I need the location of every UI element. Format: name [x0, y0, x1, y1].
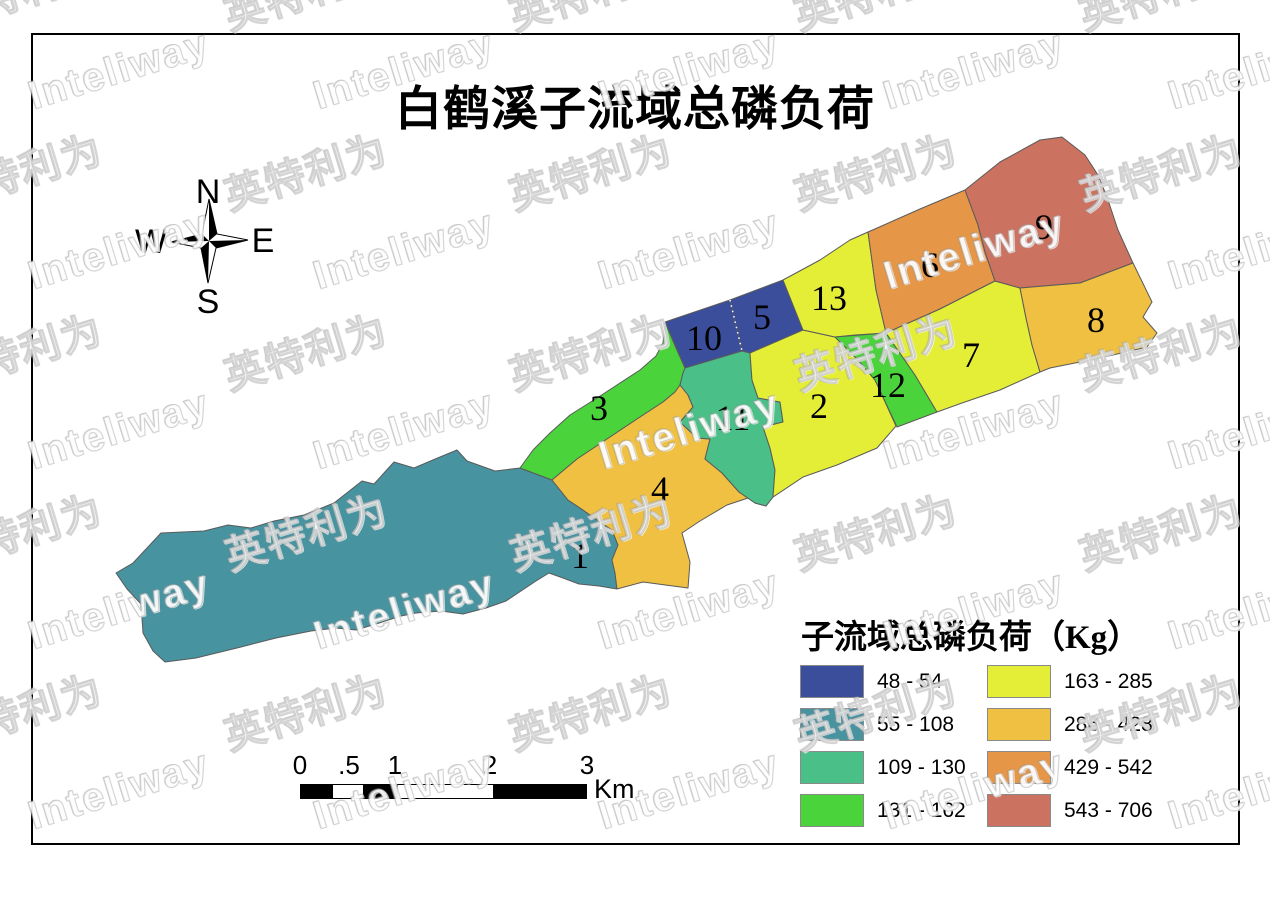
- legend-range-label: 163 - 285: [1064, 665, 1153, 698]
- scale-rule: [300, 784, 587, 799]
- legend-swatch: [800, 751, 864, 784]
- subbasin-6-label: 6: [921, 245, 939, 285]
- subbasin-7-label: 7: [962, 335, 980, 375]
- legend-range-label: 131 - 162: [877, 794, 966, 827]
- scale-tick: .5: [338, 750, 360, 781]
- subbasin-3-label: 3: [590, 388, 608, 428]
- scale-tick: 3: [580, 750, 594, 781]
- scale-segment: [493, 785, 586, 798]
- legend-swatch: [987, 751, 1051, 784]
- subbasin-1-label: 1: [571, 536, 589, 576]
- legend-item: 163 - 285: [987, 665, 1153, 698]
- scale-tick: 0: [293, 750, 307, 781]
- legend-range-label: 429 - 542: [1064, 751, 1153, 784]
- compass-north-label: N: [196, 173, 221, 211]
- legend-title: 子流域总磷负荷（Kg）: [801, 610, 1140, 658]
- legend-swatch: [800, 708, 864, 741]
- legend-swatch: [800, 794, 864, 827]
- legend-item: 131 - 162: [800, 794, 966, 827]
- scale-segment: [363, 785, 398, 798]
- legend-range-label: 109 - 130: [877, 751, 966, 784]
- scale-tick: 2: [483, 750, 497, 781]
- legend-range-label: 286 - 428: [1064, 708, 1153, 741]
- legend-item: 48 - 54: [800, 665, 942, 698]
- subbasin-10-label: 10: [686, 318, 722, 358]
- legend-swatch: [987, 794, 1051, 827]
- subbasin-12-label: 12: [870, 365, 906, 405]
- compass-rose: N E S W: [120, 160, 300, 330]
- compass-west-label: W: [135, 223, 167, 261]
- legend-swatch: [987, 708, 1051, 741]
- legend-item: 543 - 706: [987, 794, 1153, 827]
- compass-east-label: E: [252, 222, 275, 260]
- legend-item: 109 - 130: [800, 751, 966, 784]
- subbasin-1-polygon: [116, 450, 618, 662]
- subbasin-11-label: 11: [716, 398, 751, 438]
- subbasin-5-label: 5: [753, 297, 771, 337]
- legend-item: 286 - 428: [987, 708, 1153, 741]
- subbasin-4-label: 4: [651, 469, 669, 509]
- subbasin-8-label: 8: [1087, 300, 1105, 340]
- legend-item: 55 - 108: [800, 708, 954, 741]
- legend-item: 429 - 542: [987, 751, 1153, 784]
- subbasin-2-label: 2: [810, 386, 828, 426]
- page-title: 白鹤溪子流域总磷负荷: [0, 70, 1270, 139]
- legend-range-label: 48 - 54: [877, 665, 942, 698]
- compass-south-label: S: [197, 283, 220, 321]
- legend-range-label: 55 - 108: [877, 708, 954, 741]
- scale-segment: [301, 785, 333, 798]
- scale-tick: 1: [388, 750, 402, 781]
- legend-range-label: 543 - 706: [1064, 794, 1153, 827]
- subbasin-9-label: 9: [1035, 207, 1053, 247]
- subbasin-13-label: 13: [811, 278, 847, 318]
- legend-swatch: [987, 665, 1051, 698]
- scale-unit-label: Km: [594, 774, 635, 805]
- map-document: 白鹤溪子流域总磷负荷 13410511213126798 N E S W 0 .…: [0, 0, 1270, 897]
- legend-swatch: [800, 665, 864, 698]
